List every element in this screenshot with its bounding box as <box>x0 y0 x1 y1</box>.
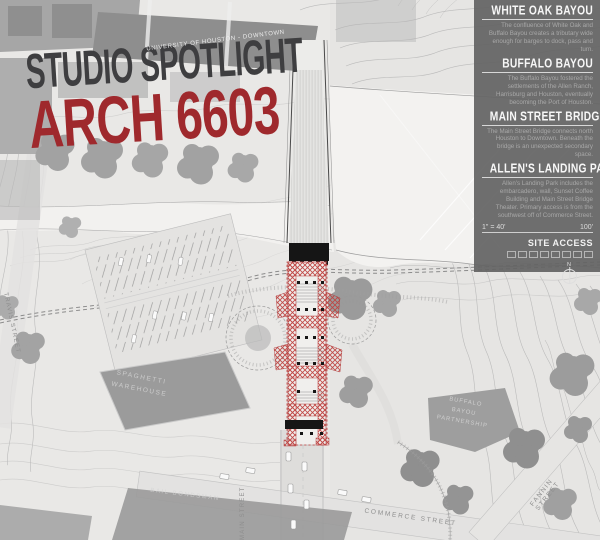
heading-divider <box>482 19 593 20</box>
section-main-street-bridge: MAIN STREET BRIDGE The Main Street Bridg… <box>482 111 593 160</box>
scale-ratio: 1" = 40' <box>482 224 505 231</box>
site-access-heading: SITE ACCESS <box>482 238 593 248</box>
north-arrow: N <box>482 261 593 284</box>
access-marker <box>507 251 516 258</box>
section-heading: BUFFALO BAYOU <box>490 57 593 71</box>
section-body: The Main Street Bridge connects north Ho… <box>482 128 593 160</box>
legend-sidebar: WHITE OAK BAYOU The confluence of White … <box>474 0 600 272</box>
access-marker <box>584 251 593 258</box>
compass-needle <box>569 267 571 284</box>
bridge-deck <box>289 243 329 261</box>
access-marker <box>573 251 582 258</box>
section-body: The Buffalo Bayou fostered the settlemen… <box>482 75 593 107</box>
section-body: Allen's Landing Park includes the embarc… <box>482 180 593 220</box>
scale-distance: 100' <box>580 224 593 231</box>
access-marker <box>540 251 549 258</box>
access-marker <box>518 251 527 258</box>
section-heading: MAIN STREET BRIDGE <box>490 109 593 123</box>
section-body: The confluence of White Oak and Buffalo … <box>482 22 593 54</box>
heading-divider <box>482 72 593 73</box>
section-buffalo-bayou: BUFFALO BAYOU The Buffalo Bayou fostered… <box>482 58 593 107</box>
heading-divider <box>482 177 593 178</box>
compass-dial-icon <box>562 269 577 284</box>
access-marker <box>551 251 560 258</box>
section-allens-landing-park: ALLEN'S LANDING PARK Allen's Landing Par… <box>482 163 593 220</box>
studio-spotlight-poster: STUDIO SPOTLIGHT ARCH 6603 UNIVERSITY OF… <box>0 0 600 540</box>
lower-bridge-bar <box>285 420 323 429</box>
scale-bar: 1" = 40' 100' <box>482 224 593 233</box>
heading-divider <box>482 125 593 126</box>
section-white-oak-bayou: WHITE OAK BAYOU The confluence of White … <box>482 5 593 54</box>
access-marker <box>529 251 538 258</box>
site-access-markers <box>482 251 593 258</box>
section-heading: ALLEN'S LANDING PARK <box>490 162 593 176</box>
access-marker <box>562 251 571 258</box>
section-heading: WHITE OAK BAYOU <box>490 4 593 18</box>
